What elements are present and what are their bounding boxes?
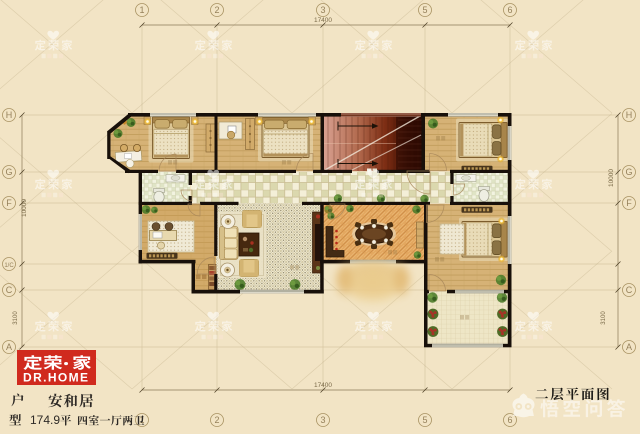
svg-text:174.9: 174.9 bbox=[30, 413, 60, 427]
svg-text:A: A bbox=[626, 342, 632, 352]
svg-text:1/C: 1/C bbox=[4, 263, 14, 269]
svg-text:2: 2 bbox=[214, 415, 219, 425]
svg-text:3: 3 bbox=[320, 5, 325, 15]
svg-text:17400: 17400 bbox=[314, 382, 332, 389]
svg-text:C: C bbox=[6, 285, 13, 295]
svg-text:10000: 10000 bbox=[608, 169, 615, 187]
svg-text:H: H bbox=[626, 110, 633, 120]
svg-text:H: H bbox=[6, 110, 13, 120]
svg-text:DR.HOME: DR.HOME bbox=[23, 371, 89, 385]
svg-text:6: 6 bbox=[507, 415, 512, 425]
svg-text:G: G bbox=[625, 167, 632, 177]
svg-text:5: 5 bbox=[422, 5, 427, 15]
svg-text:3: 3 bbox=[320, 415, 325, 425]
svg-text:6: 6 bbox=[507, 5, 512, 15]
svg-text:F: F bbox=[626, 198, 632, 208]
svg-text:3100: 3100 bbox=[13, 311, 19, 325]
svg-text:17400: 17400 bbox=[314, 17, 332, 24]
svg-text:C: C bbox=[626, 285, 633, 295]
svg-text:G: G bbox=[5, 167, 12, 177]
svg-text:A: A bbox=[6, 342, 12, 352]
svg-text:2: 2 bbox=[214, 5, 219, 15]
svg-text:5: 5 bbox=[422, 415, 427, 425]
svg-text:3100: 3100 bbox=[601, 311, 607, 325]
svg-text:10000: 10000 bbox=[21, 199, 28, 217]
svg-text:F: F bbox=[6, 198, 12, 208]
svg-text:1: 1 bbox=[139, 5, 144, 15]
